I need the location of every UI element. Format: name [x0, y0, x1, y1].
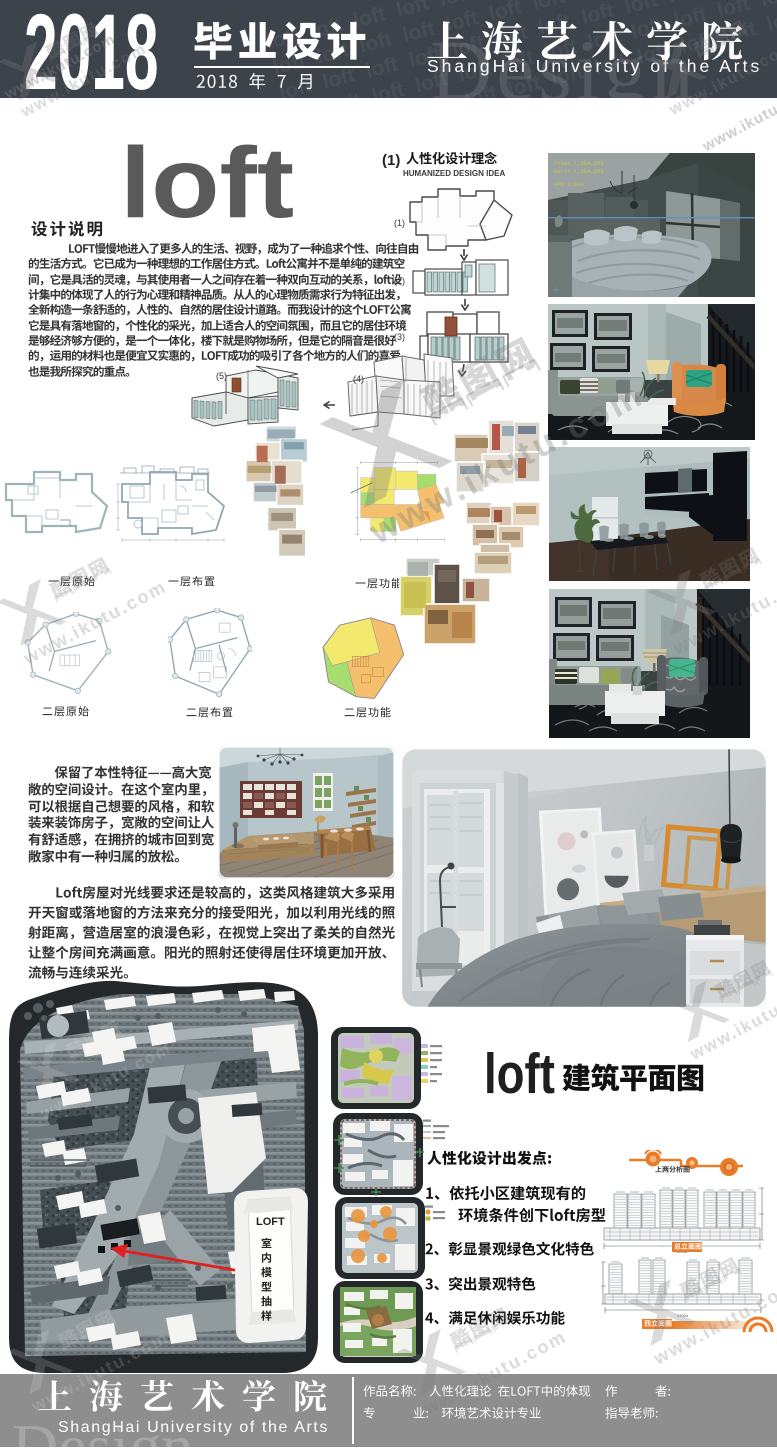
- svg-text:Frame 1,364,283: Frame 1,364,283: [554, 160, 604, 167]
- svg-text:FPS 1.804: FPS 1.804: [554, 181, 584, 188]
- svg-text:Verts 1,364,283: Verts 1,364,283: [554, 168, 604, 175]
